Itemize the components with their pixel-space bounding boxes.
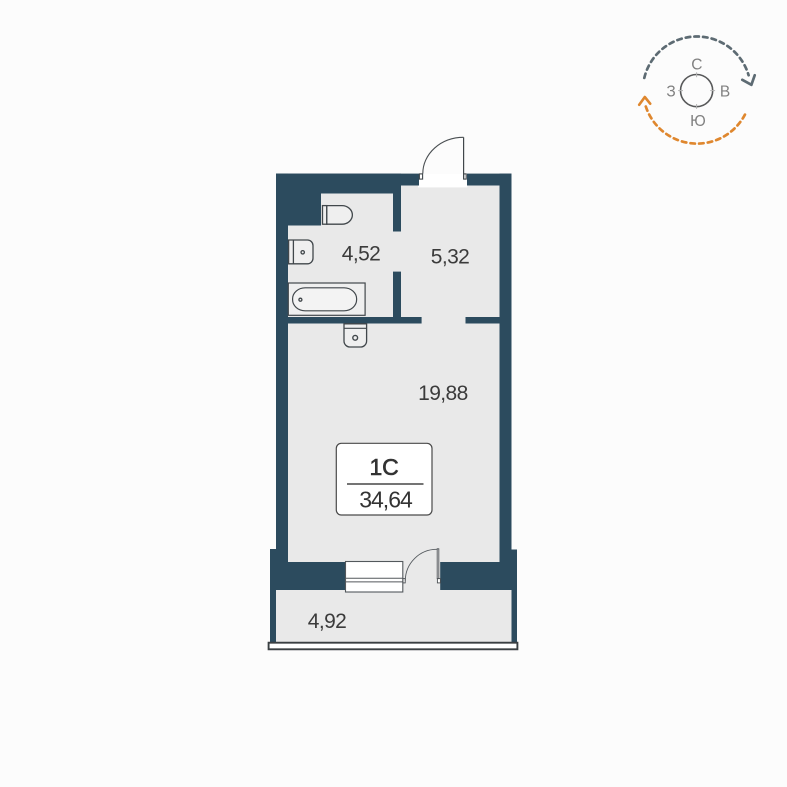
svg-text:1С: 1С bbox=[369, 454, 398, 480]
svg-text:34,64: 34,64 bbox=[359, 487, 413, 513]
svg-text:Ю: Ю bbox=[690, 113, 706, 130]
svg-text:С: С bbox=[691, 56, 702, 73]
svg-text:5,32: 5,32 bbox=[431, 245, 469, 268]
svg-text:19,88: 19,88 bbox=[418, 382, 468, 405]
svg-text:В: В bbox=[720, 83, 730, 100]
svg-text:4,92: 4,92 bbox=[308, 610, 346, 633]
svg-text:4,52: 4,52 bbox=[342, 243, 380, 266]
svg-text:З: З bbox=[666, 83, 675, 100]
